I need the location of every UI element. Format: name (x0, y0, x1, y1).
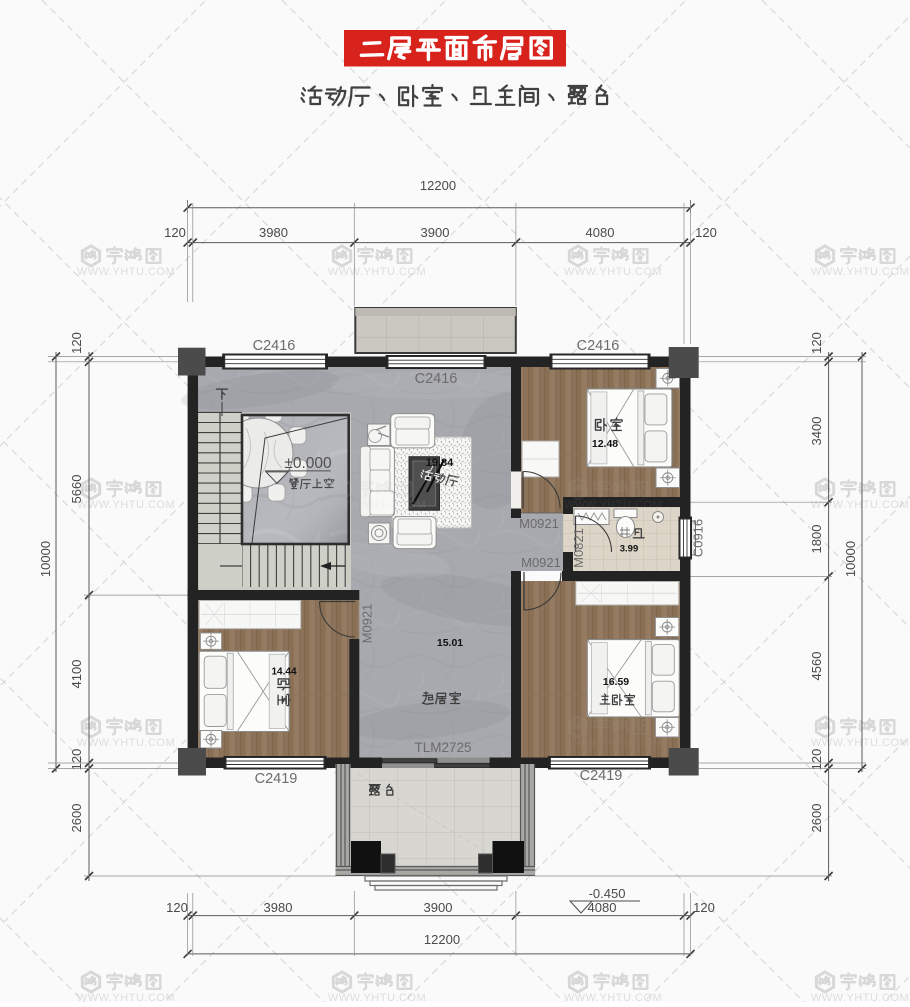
svg-text:WWW.YHTU.COM: WWW.YHTU.COM (328, 266, 426, 278)
svg-text:3.99: 3.99 (620, 544, 639, 555)
svg-text:3980: 3980 (259, 225, 288, 240)
svg-text:WWW.YHTU.COM: WWW.YHTU.COM (811, 737, 909, 749)
svg-text:12200: 12200 (420, 178, 456, 193)
svg-text:4560: 4560 (809, 652, 824, 681)
svg-text:12200: 12200 (424, 932, 460, 947)
svg-text:4100: 4100 (69, 660, 84, 689)
svg-text:14.44: 14.44 (271, 667, 296, 678)
svg-text:3900: 3900 (421, 225, 450, 240)
svg-text:4080: 4080 (586, 225, 615, 240)
svg-text:120: 120 (69, 332, 84, 354)
svg-text:120: 120 (809, 749, 824, 771)
svg-text:120: 120 (69, 749, 84, 771)
svg-text:WWW.YHTU.COM: WWW.YHTU.COM (328, 992, 426, 1002)
svg-text:WWW.YHTU.COM: WWW.YHTU.COM (811, 992, 909, 1002)
svg-text:WWW.YHTU.COM: WWW.YHTU.COM (564, 499, 662, 511)
svg-text:WWW.YHTU.COM: WWW.YHTU.COM (564, 266, 662, 278)
svg-text:C2416: C2416 (577, 338, 620, 354)
svg-text:120: 120 (164, 225, 186, 240)
svg-text:120: 120 (695, 225, 717, 240)
svg-text:WWW.YHTU.COM: WWW.YHTU.COM (77, 992, 175, 1002)
svg-text:120: 120 (809, 332, 824, 354)
svg-text:WWW.YHTU.COM: WWW.YHTU.COM (564, 992, 662, 1002)
svg-text:15.01: 15.01 (437, 637, 463, 649)
svg-text:C2416: C2416 (415, 371, 458, 387)
svg-text:2600: 2600 (809, 804, 824, 833)
svg-text:M0921: M0921 (360, 604, 375, 644)
svg-text:3980: 3980 (264, 900, 293, 915)
svg-text:TLM2725: TLM2725 (414, 740, 471, 755)
svg-text:3400: 3400 (809, 417, 824, 446)
svg-text:±0.000: ±0.000 (284, 455, 332, 472)
svg-text:WWW.YHTU.COM: WWW.YHTU.COM (77, 499, 175, 511)
svg-text:16.59: 16.59 (603, 676, 629, 688)
svg-text:10000: 10000 (843, 541, 858, 577)
svg-text:WWW.YHTU.COM: WWW.YHTU.COM (811, 266, 909, 278)
svg-text:19.84: 19.84 (426, 457, 454, 469)
svg-text:WWW.YHTU.COM: WWW.YHTU.COM (77, 266, 175, 278)
svg-text:2600: 2600 (69, 804, 84, 833)
svg-text:-0.450: -0.450 (589, 886, 626, 901)
svg-text:3900: 3900 (424, 900, 453, 915)
svg-text:12.48: 12.48 (592, 438, 618, 450)
svg-text:M0921: M0921 (519, 516, 559, 531)
svg-text:120: 120 (166, 900, 188, 915)
svg-text:C2416: C2416 (253, 338, 296, 354)
svg-text:M0921: M0921 (521, 555, 561, 570)
svg-text:C0916: C0916 (691, 519, 706, 557)
svg-text:WWW.YHTU.COM: WWW.YHTU.COM (328, 499, 426, 511)
svg-text:1800: 1800 (809, 525, 824, 554)
svg-text:10000: 10000 (38, 541, 53, 577)
svg-text:5660: 5660 (69, 475, 84, 504)
svg-text:M0821: M0821 (571, 528, 586, 568)
svg-text:WWW.YHTU.COM: WWW.YHTU.COM (564, 737, 662, 749)
svg-text:C2419: C2419 (580, 768, 623, 784)
svg-text:WWW.YHTU.COM: WWW.YHTU.COM (77, 737, 175, 749)
svg-text:120: 120 (693, 900, 715, 915)
svg-text:4080: 4080 (588, 900, 617, 915)
svg-text:C2419: C2419 (255, 771, 298, 787)
